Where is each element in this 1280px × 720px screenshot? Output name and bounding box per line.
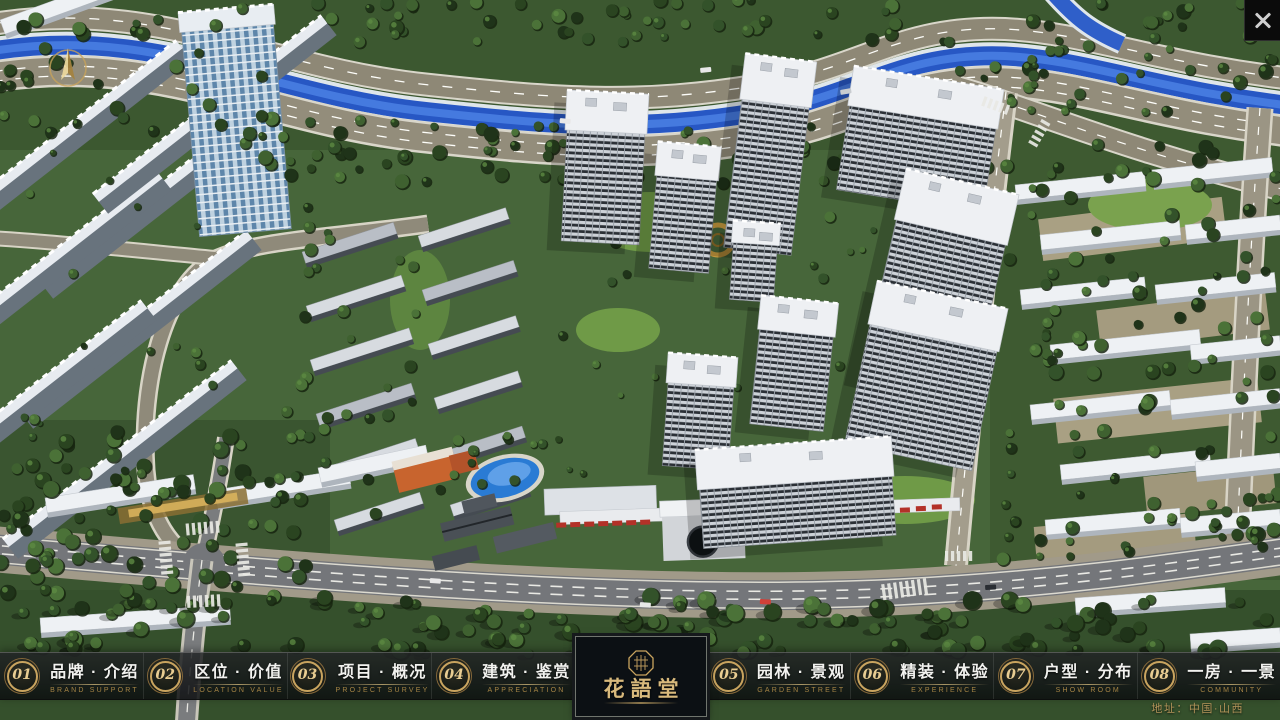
nav-item-title: 户型 · 分布: [1044, 658, 1133, 682]
nav-item-caption: BRAND SUPPORT: [50, 687, 139, 694]
divider: [757, 684, 846, 685]
nav-item-project-overview[interactable]: 03 项目 · 概况PROJECT SURVEY: [287, 653, 431, 699]
nav-item-caption: EXPERIENCE: [911, 687, 978, 694]
divider: [900, 684, 989, 685]
project-address: 地址：中国·山西: [1151, 700, 1244, 716]
divider: [1044, 684, 1133, 685]
nav-item-caption: APPRECIATION: [487, 687, 565, 694]
nav-item-architecture[interactable]: 04 建筑 · 鉴赏APPRECIATION: [431, 653, 575, 699]
divider: [1187, 684, 1276, 685]
item-number-badge: 03: [290, 658, 326, 694]
nav-item-title: 项目 · 概况: [338, 658, 427, 682]
nav-item-location-value[interactable]: 02 区位 · 价值LOCATION VALUE: [143, 653, 287, 699]
logo-underline: [604, 702, 678, 704]
nav-item-interior-experience[interactable]: 06 精装 · 体验EXPERIENCE: [850, 653, 994, 699]
close-icon: [1254, 11, 1272, 29]
presentation-stage: 01 品牌 · 介绍BRAND SUPPORT 02 区位 · 价值LOCATI…: [0, 0, 1280, 720]
project-name: 花語堂: [598, 678, 685, 699]
nav-item-title: 建筑 · 鉴赏: [482, 658, 571, 682]
project-logo[interactable]: 花語堂: [575, 636, 707, 717]
nav-item-caption: COMMUNITY: [1200, 687, 1263, 694]
nav-item-floorplan-distribution[interactable]: 07 户型 · 分布SHOW ROOM: [993, 653, 1137, 699]
divider: [193, 684, 283, 685]
item-number-badge: 08: [1141, 658, 1177, 694]
divider: [336, 684, 430, 685]
item-number-badge: 05: [711, 658, 747, 694]
divider: [50, 684, 139, 685]
nav-item-landscape[interactable]: 05 园林 · 景观GARDEN STREET: [707, 653, 850, 699]
nav-item-title: 一房 · 一景: [1187, 658, 1276, 682]
nav-group-right: 05 园林 · 景观GARDEN STREET 06 精装 · 体验EXPERI…: [707, 653, 1280, 699]
nav-item-brand-intro[interactable]: 01 品牌 · 介绍BRAND SUPPORT: [0, 653, 143, 699]
divider: [482, 684, 571, 685]
item-number-badge: 01: [4, 658, 40, 694]
nav-item-caption: PROJECT SURVEY: [336, 687, 430, 694]
nav-item-room-view[interactable]: 08 一房 · 一景COMMUNITY: [1137, 653, 1280, 699]
nav-item-title: 区位 · 价值: [194, 658, 283, 682]
item-number-badge: 07: [998, 658, 1034, 694]
item-number-badge: 04: [436, 658, 472, 694]
item-number-badge: 02: [147, 658, 183, 694]
compass-icon: [44, 42, 92, 90]
item-number-badge: 06: [854, 658, 890, 694]
nav-item-caption: GARDEN STREET: [757, 687, 845, 694]
nav-group-left: 01 品牌 · 介绍BRAND SUPPORT 02 区位 · 价值LOCATI…: [0, 653, 575, 699]
nav-item-title: 精装 · 体验: [900, 658, 989, 682]
masterplan-render: [0, 0, 1280, 720]
nav-item-title: 园林 · 景观: [757, 658, 846, 682]
close-button[interactable]: [1244, 0, 1280, 41]
seal-icon: [627, 649, 655, 677]
nav-item-caption: LOCATION VALUE: [193, 687, 283, 694]
nav-item-title: 品牌 · 介绍: [50, 658, 139, 682]
nav-item-caption: SHOW ROOM: [1056, 687, 1121, 694]
